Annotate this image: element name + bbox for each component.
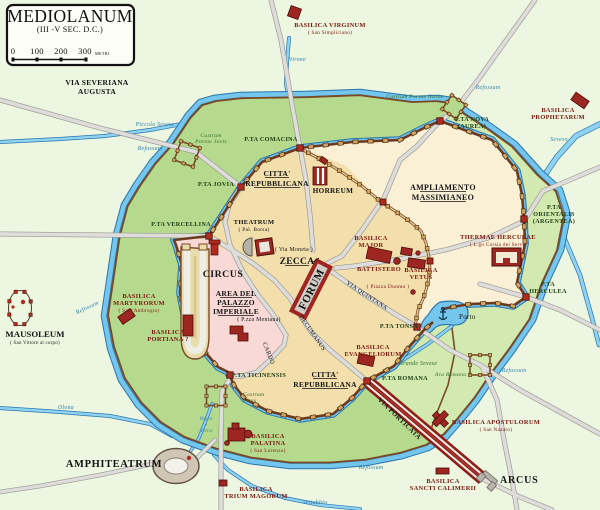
svg-text:BATTISTERO: BATTISTERO — [357, 266, 401, 273]
svg-text:MAUSOLEUM: MAUSOLEUM — [5, 329, 65, 339]
svg-text:( P.zza Mentana): ( P.zza Mentana) — [237, 316, 281, 323]
svg-text:P.TA ROMANA: P.TA ROMANA — [382, 375, 428, 382]
svg-text:BASILICA VIRGINUM: BASILICA VIRGINUM — [294, 22, 366, 29]
svg-text:MAJOR: MAJOR — [359, 242, 384, 249]
svg-text:Refossum: Refossum — [501, 367, 527, 374]
svg-text:P.TA NOVA: P.TA NOVA — [455, 116, 489, 123]
svg-text:REPUBBLICANA: REPUBBLICANA — [245, 179, 309, 188]
svg-text:ORIENTALIS: ORIENTALIS — [533, 211, 575, 218]
svg-text:( Sant'Ambrogio): ( Sant'Ambrogio) — [118, 307, 159, 314]
svg-text:PALATINA: PALATINA — [251, 440, 286, 447]
svg-text:EVANGELIORUM: EVANGELIORUM — [344, 351, 401, 358]
svg-text:PROPHETARUM: PROPHETARUM — [531, 114, 585, 121]
svg-text:Porto: Porto — [459, 313, 476, 321]
svg-text:P.TA: P.TA — [547, 204, 561, 211]
svg-text:AREA DEL: AREA DEL — [216, 289, 257, 298]
svg-text:300: 300 — [78, 46, 92, 56]
svg-text:Grande Sevese: Grande Sevese — [399, 361, 438, 367]
svg-text:P.TA JOVIA: P.TA JOVIA — [198, 181, 235, 188]
svg-text:( Via Moneta ): ( Via Moneta ) — [275, 246, 313, 253]
svg-text:Ara Romana ?: Ara Romana ? — [434, 372, 471, 378]
svg-text:BASILICA: BASILICA — [404, 267, 437, 274]
svg-text:P.TA TICINENSIS: P.TA TICINENSIS — [232, 372, 287, 379]
svg-text:P.TA: P.TA — [541, 281, 555, 288]
svg-text:(AUREA): (AUREA) — [458, 123, 486, 130]
svg-text:P.TA COMACINA: P.TA COMACINA — [244, 136, 298, 143]
svg-text:BASILICA: BASILICA — [122, 293, 155, 300]
svg-text:BASILICA: BASILICA — [356, 344, 389, 351]
svg-text:CITTA': CITTA' — [311, 370, 338, 379]
svg-text:BASILICA: BASILICA — [251, 433, 284, 440]
svg-text:AMPLIAMENTO: AMPLIAMENTO — [410, 183, 476, 192]
svg-text:Nirone: Nirone — [287, 57, 306, 63]
svg-text:MARTYRORUM: MARTYRORUM — [113, 300, 165, 307]
svg-text:THEATRUM: THEATRUM — [234, 219, 275, 226]
svg-text:( San Vittore al corpo): ( San Vittore al corpo) — [10, 341, 60, 346]
svg-text:Refossum: Refossum — [358, 464, 384, 471]
svg-text:BASILICA: BASILICA — [541, 107, 574, 114]
svg-text:( Piazza Duomo ): ( Piazza Duomo ) — [367, 283, 410, 290]
svg-text:TRIUM MAGORUM: TRIUM MAGORUM — [224, 493, 287, 500]
svg-text:SANCTI CALIMERII: SANCTI CALIMERII — [410, 485, 477, 492]
svg-text:THERMAE HERCULAE: THERMAE HERCULAE — [460, 234, 536, 241]
svg-text:Piccolo Sevese: Piccolo Sevese — [135, 122, 175, 128]
svg-text:HERCULEA: HERCULEA — [529, 288, 567, 295]
svg-text:MASSIMIANEO: MASSIMIANEO — [412, 193, 474, 202]
svg-text:Portae Jovis: Portae Jovis — [194, 139, 227, 145]
svg-text:Refossum: Refossum — [475, 84, 501, 91]
svg-text:ARCUS: ARCUS — [500, 475, 538, 486]
svg-text:PORTIANA ?: PORTIANA ? — [147, 336, 188, 343]
svg-text:BASILICA: BASILICA — [239, 486, 272, 493]
svg-text:PALAZZO: PALAZZO — [217, 298, 255, 307]
svg-text:METRI: METRI — [95, 51, 110, 56]
svg-text:( L.go Corsia dei Servi): ( L.go Corsia dei Servi) — [470, 241, 526, 248]
svg-text:P.TA TONSA: P.TA TONSA — [380, 323, 418, 330]
svg-text:VIA SEVERIANA: VIA SEVERIANA — [65, 78, 129, 87]
svg-text:HORREUM: HORREUM — [313, 187, 353, 195]
svg-text:(ARGENTEA): (ARGENTEA) — [533, 218, 575, 225]
svg-text:IMPERIALE: IMPERIALE — [213, 307, 259, 316]
svg-text:BASILICA: BASILICA — [151, 329, 184, 336]
svg-text:Castrum Portae Novae: Castrum Portae Novae — [386, 94, 444, 100]
svg-text:( San Simpliciano): ( San Simpliciano) — [308, 29, 352, 36]
svg-text:( San Lorenzo): ( San Lorenzo) — [250, 447, 285, 454]
svg-text:Seveso: Seveso — [550, 137, 568, 143]
svg-text:100: 100 — [30, 46, 44, 56]
svg-text:P.TA VERCELLINA: P.TA VERCELLINA — [151, 221, 211, 228]
svg-text:Vetus: Vetus — [243, 398, 256, 404]
svg-text:REPUBBLICANA: REPUBBLICANA — [293, 380, 357, 389]
svg-text:BASILICA: BASILICA — [354, 235, 387, 242]
svg-text:0: 0 — [11, 46, 16, 56]
svg-text:AMPHITEATRUM: AMPHITEATRUM — [66, 459, 162, 470]
svg-text:AUGUSTA: AUGUSTA — [78, 87, 116, 96]
svg-text:( San Nazaro): ( San Nazaro) — [480, 426, 513, 433]
svg-text:CIRCUS: CIRCUS — [203, 269, 244, 280]
svg-text:( Pal. Borsa): ( Pal. Borsa) — [239, 226, 270, 233]
svg-text:(III -V SEC. D.C.): (III -V SEC. D.C.) — [37, 25, 103, 34]
svg-text:VETUS: VETUS — [410, 274, 433, 281]
svg-text:BASILICA APOSTULORUM: BASILICA APOSTULORUM — [452, 419, 540, 426]
svg-text:BASILICA: BASILICA — [426, 478, 459, 485]
svg-text:Vetra: Vetra — [200, 428, 213, 434]
svg-text:Refossum: Refossum — [137, 145, 163, 152]
svg-text:Vettabbia: Vettabbia — [303, 500, 328, 506]
svg-text:Olona: Olona — [58, 405, 74, 411]
svg-text:200: 200 — [54, 46, 68, 56]
svg-text:CITTA': CITTA' — [263, 169, 290, 178]
svg-text:MEDIOLANUM: MEDIOLANUM — [7, 6, 133, 26]
